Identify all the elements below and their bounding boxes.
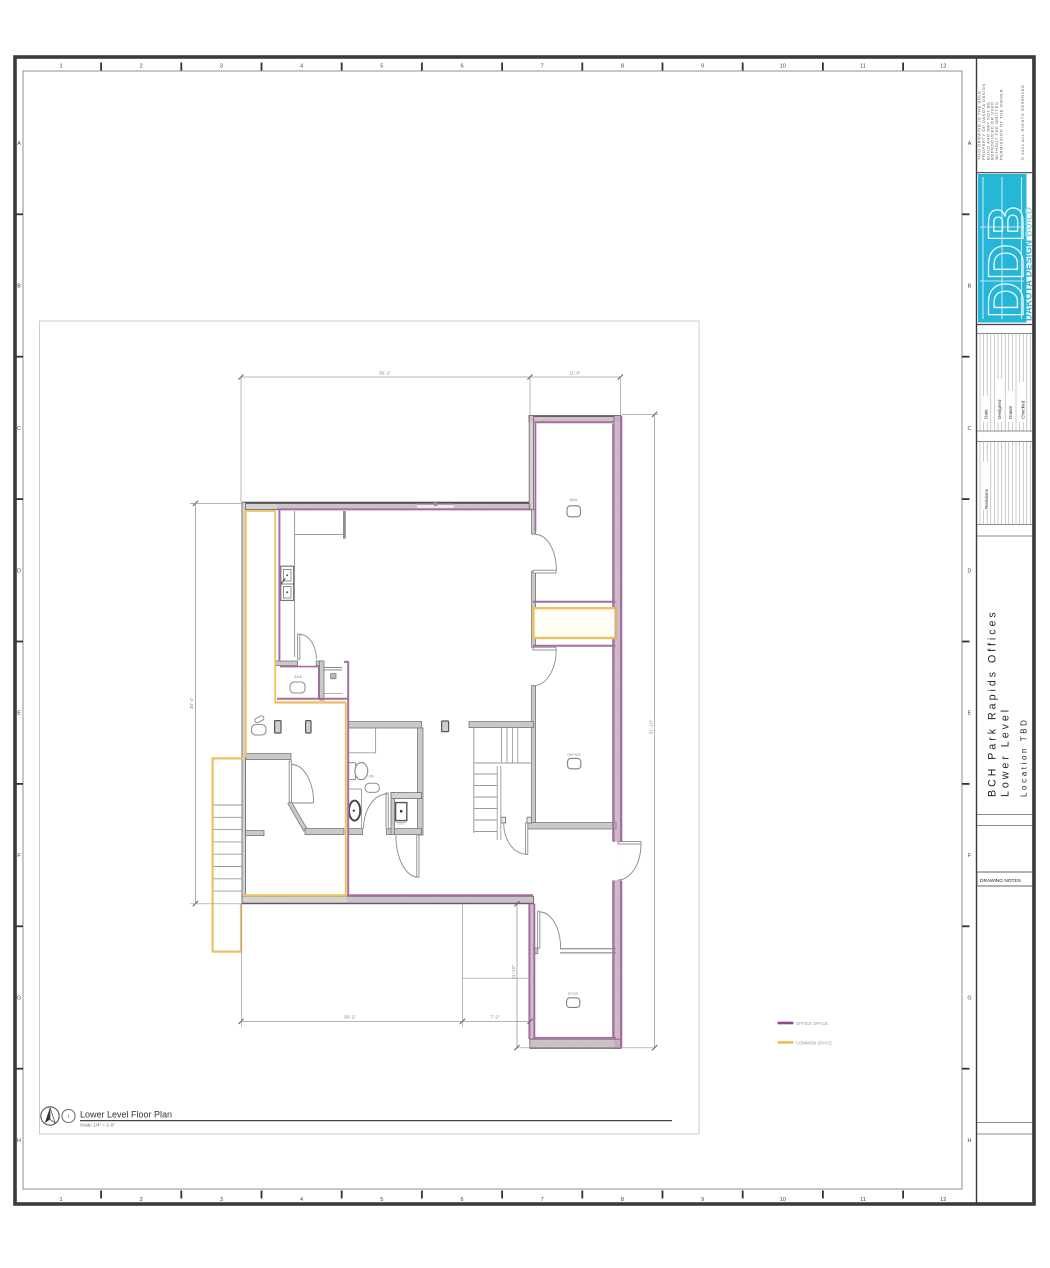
svg-text:DRAWING NOTES: DRAWING NOTES — [980, 878, 1021, 884]
svg-text:C: C — [968, 426, 972, 432]
svg-text:G: G — [17, 996, 21, 1002]
svg-text:B: B — [17, 284, 21, 290]
svg-text:3: 3 — [220, 1197, 223, 1203]
svg-text:31'-10": 31'-10" — [648, 719, 654, 734]
svg-text:1: 1 — [59, 64, 62, 70]
svg-text:8: 8 — [621, 1197, 624, 1203]
svg-text:ADA: ADA — [570, 498, 578, 502]
svg-text:11'-0": 11'-0" — [569, 371, 581, 377]
svg-text:8: 8 — [621, 64, 624, 70]
svg-text:7'-2": 7'-2" — [490, 1014, 500, 1020]
svg-text:9: 9 — [701, 1197, 704, 1203]
svg-text:7: 7 — [541, 1197, 544, 1203]
svg-text:D: D — [17, 568, 21, 574]
svg-text:Scale: 1/4" = 1'-0": Scale: 1/4" = 1'-0" — [80, 1123, 115, 1128]
svg-text:5: 5 — [380, 64, 383, 70]
svg-text:C: C — [17, 426, 21, 432]
svg-text:Checked: Checked — [1021, 400, 1026, 419]
svg-text:30'-2": 30'-2" — [344, 1014, 357, 1020]
svg-text:6: 6 — [460, 64, 463, 70]
svg-text:F: F — [17, 853, 21, 859]
svg-text:COMMON SPACE: COMMON SPACE — [796, 1040, 832, 1045]
svg-text:H: H — [968, 1138, 972, 1144]
svg-text:B: B — [968, 284, 972, 290]
svg-text:bth: bth — [369, 775, 374, 779]
svg-text:Drawn: Drawn — [1008, 405, 1013, 419]
svg-text:11'-10": 11'-10" — [511, 964, 517, 979]
svg-text:H: H — [17, 1138, 21, 1144]
svg-text:BCH Park Rapids Offices: BCH Park Rapids Offices — [987, 609, 999, 797]
svg-text:4: 4 — [300, 1197, 303, 1203]
svg-text:Lower Level Floor Plan: Lower Level Floor Plan — [80, 1110, 172, 1120]
svg-text:Location TBD: Location TBD — [1020, 717, 1029, 797]
svg-text:35'-2": 35'-2" — [379, 371, 392, 377]
svg-text:11: 11 — [860, 64, 866, 70]
svg-text:© 2021 ALL RIGHTS RESERVED: © 2021 ALL RIGHTS RESERVED — [1020, 84, 1025, 160]
svg-text:30'-4": 30'-4" — [189, 697, 195, 710]
svg-text:ADA: ADA — [294, 675, 302, 679]
svg-text:DAKOTA DESIGN BUILD: DAKOTA DESIGN BUILD — [1024, 207, 1035, 321]
svg-text:9: 9 — [701, 64, 704, 70]
svg-text:A: A — [17, 141, 21, 147]
svg-text:Date: Date — [984, 409, 989, 419]
svg-text:E: E — [968, 711, 972, 717]
svg-text:STOR: STOR — [568, 992, 579, 996]
svg-text:12: 12 — [940, 1197, 946, 1203]
svg-text:1: 1 — [67, 1114, 70, 1119]
svg-text:2: 2 — [140, 64, 143, 70]
svg-text:D: D — [968, 568, 972, 574]
svg-text:7: 7 — [541, 64, 544, 70]
svg-text:3: 3 — [220, 64, 223, 70]
svg-text:10: 10 — [780, 1197, 786, 1203]
svg-text:OFFICE: OFFICE — [567, 753, 581, 757]
svg-text:F: F — [968, 853, 972, 859]
svg-text:6: 6 — [460, 1197, 463, 1203]
svg-text:5: 5 — [380, 1197, 383, 1203]
svg-text:G: G — [967, 996, 971, 1002]
svg-text:4: 4 — [300, 64, 303, 70]
svg-text:Lower Level: Lower Level — [1000, 707, 1012, 797]
svg-text:11: 11 — [860, 1197, 866, 1203]
svg-text:2: 2 — [140, 1197, 143, 1203]
svg-text:E: E — [17, 711, 21, 717]
svg-text:10: 10 — [780, 64, 786, 70]
svg-text:OFFICE SPACE: OFFICE SPACE — [796, 1021, 828, 1026]
svg-text:PERMISSION OF THE OWNER: PERMISSION OF THE OWNER — [999, 89, 1004, 160]
svg-text:A: A — [968, 141, 972, 147]
svg-text:1: 1 — [59, 1197, 62, 1203]
svg-text:Designed: Designed — [997, 399, 1002, 419]
svg-text:12: 12 — [940, 64, 946, 70]
svg-text:Revisions: Revisions — [984, 488, 989, 509]
